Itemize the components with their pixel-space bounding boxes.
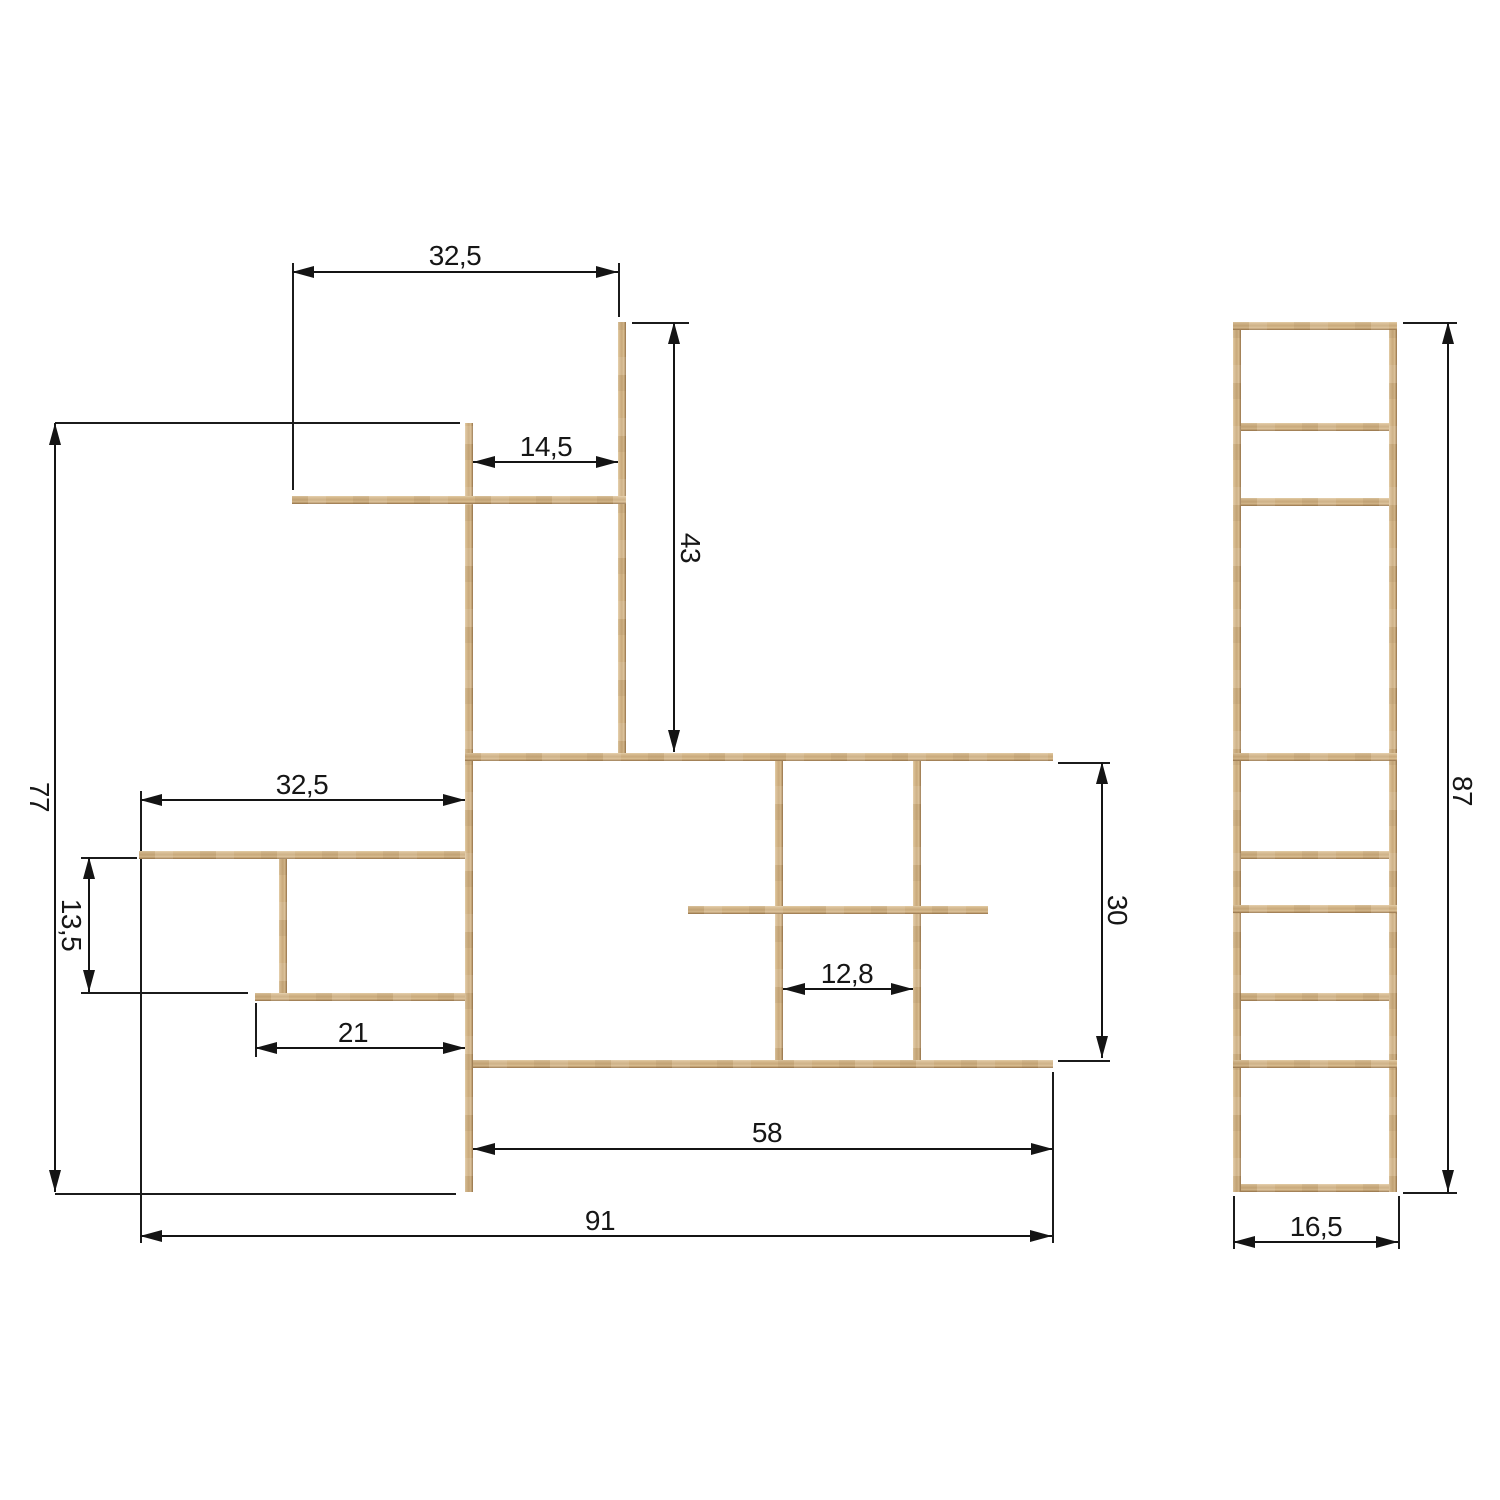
front-mid-right-shelf — [688, 906, 988, 914]
dim-lower-width-label: 58 — [752, 1119, 782, 1147]
ext-left-height-bot — [81, 992, 248, 994]
dim-total-width-arrow-left — [140, 1230, 162, 1242]
front-top-post — [618, 322, 626, 757]
dim-upper-inner-arrow-left — [473, 456, 495, 468]
dim-mid-gap-arrow-left — [783, 983, 805, 995]
dim-side-depth-arrow-left — [1233, 1236, 1255, 1248]
side-bar-8 — [1233, 1060, 1397, 1068]
dim-mid-height-arrow-bottom — [1096, 1036, 1108, 1058]
dim-lower-width-arrow-left — [473, 1143, 495, 1155]
dim-top-width-label: 32,5 — [429, 242, 482, 270]
side-bar-5 — [1241, 851, 1389, 859]
dim-total-width-label: 91 — [585, 1207, 615, 1235]
side-bar-6 — [1233, 905, 1397, 913]
dim-side-height-arrow-top — [1442, 322, 1454, 344]
dim-side-height-label: 87 — [1448, 776, 1476, 806]
side-bar-7 — [1241, 993, 1389, 1001]
side-bar-4 — [1233, 753, 1397, 761]
dim-mid-height-label: 30 — [1103, 895, 1131, 925]
ext-side-depth-right — [1398, 1196, 1400, 1249]
dim-side-height — [1447, 322, 1449, 1192]
dim-total-height-arrow-bottom — [49, 1170, 61, 1192]
ext-side-height-bot — [1403, 1192, 1457, 1194]
dim-lower-left-width-arrow-right — [443, 1042, 465, 1054]
dim-upper-height-arrow-top — [668, 322, 680, 344]
dim-left-height-arrow-bottom — [83, 970, 95, 992]
dim-total-height-label: 77 — [25, 782, 53, 812]
dim-left-height-arrow-top — [83, 857, 95, 879]
dim-upper-inner-arrow-right — [596, 456, 618, 468]
dim-lower-left-width-label: 21 — [338, 1019, 368, 1047]
front-small-post — [279, 857, 287, 997]
dim-mid-height-arrow-top — [1096, 762, 1108, 784]
dim-top-width — [292, 271, 618, 273]
side-top-bar — [1233, 322, 1397, 330]
side-bar-2 — [1241, 423, 1389, 431]
dim-lower-width — [473, 1148, 1053, 1150]
dim-lower-width-arrow-right — [1031, 1143, 1053, 1155]
dim-upper-inner-label: 14,5 — [520, 433, 573, 461]
dim-side-depth-label: 16,5 — [1290, 1213, 1343, 1241]
dim-side-depth-arrow-right — [1376, 1236, 1398, 1248]
dim-left-width-label: 32,5 — [276, 771, 329, 799]
front-top-left-shelf — [292, 496, 626, 504]
front-upper-long-shelf — [465, 753, 1053, 761]
front-lower-long-shelf — [473, 1060, 1053, 1068]
front-mid-left-shelf — [139, 851, 465, 859]
side-bar-3 — [1241, 498, 1389, 506]
dim-lower-left-width-arrow-left — [255, 1042, 277, 1054]
dim-left-height-label: 13,5 — [57, 899, 85, 952]
ext-top-width-right — [618, 263, 620, 317]
ext-mid-height-bot — [1058, 1060, 1110, 1062]
dim-mid-gap-arrow-right — [891, 983, 913, 995]
dim-total-width-arrow-right — [1030, 1230, 1052, 1242]
ext-top-width-left — [292, 263, 294, 490]
dim-top-width-arrow-left — [292, 266, 314, 278]
front-left-post — [465, 423, 473, 1192]
dim-upper-height-label: 43 — [676, 533, 704, 563]
side-bottom-bar — [1241, 1184, 1389, 1192]
ext-lower-width-right — [1052, 1072, 1054, 1243]
dim-left-width-arrow-right — [443, 794, 465, 806]
dim-left-width-arrow-left — [140, 794, 162, 806]
technical-drawing-canvas: 32,514,5437732,513,52112,83058918716,5 — [0, 0, 1500, 1500]
ext-total-height-top — [55, 422, 460, 424]
ext-total-height-bot — [55, 1193, 456, 1195]
dim-side-height-arrow-bottom — [1442, 1170, 1454, 1192]
dim-upper-height-arrow-bottom — [668, 730, 680, 752]
front-lower-left-shelf — [255, 993, 465, 1001]
ext-upper-height-top — [632, 322, 689, 324]
dim-top-width-arrow-right — [596, 266, 618, 278]
dim-total-height-arrow-top — [49, 423, 61, 445]
dim-mid-gap-label: 12,8 — [821, 960, 874, 988]
